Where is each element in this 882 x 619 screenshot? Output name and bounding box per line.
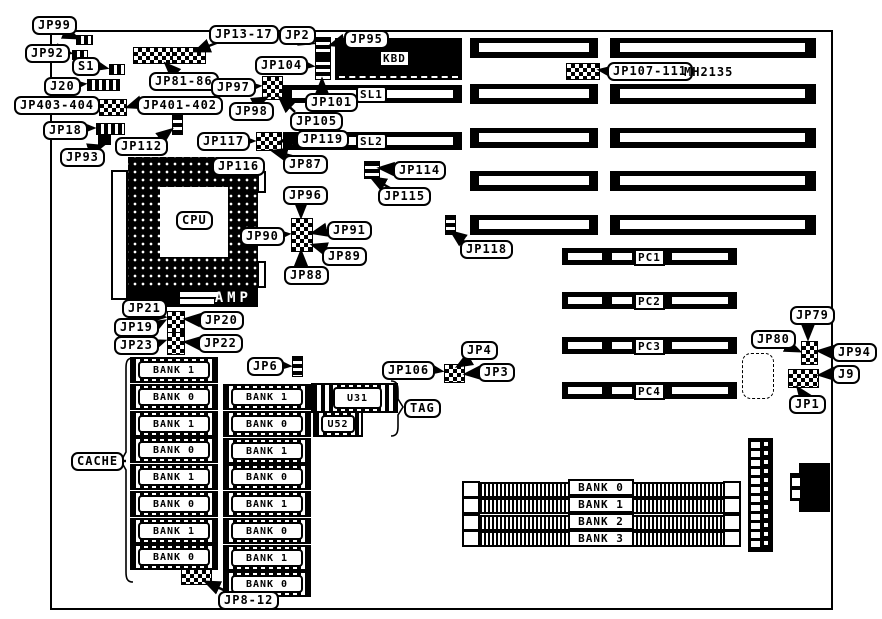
- jp13-17-label: JP13-17: [209, 25, 279, 44]
- jp88-label: JP88: [284, 266, 329, 285]
- jp119-label: JP119: [296, 130, 349, 149]
- jp6-label: JP6: [247, 357, 284, 376]
- cache-label: CACHE: [71, 452, 124, 471]
- kbd-label: KBD: [381, 52, 408, 65]
- pc3-label: PC3: [634, 338, 665, 355]
- j9-label: J9: [832, 365, 860, 384]
- jp94-label: JP94: [832, 343, 877, 362]
- j20-label: J20: [44, 77, 81, 96]
- jp87-label: JP87: [283, 155, 328, 174]
- sl2-label: SL2: [356, 133, 387, 150]
- jp97-label: JP97: [211, 78, 256, 97]
- jp107-111-label: JP107-111: [607, 62, 693, 81]
- simm-bank-label: BANK 3: [568, 530, 634, 547]
- jp105-label: JP105: [290, 112, 343, 131]
- jp118-label: JP118: [460, 240, 513, 259]
- jp3-label: JP3: [478, 363, 515, 382]
- jp116-label: JP116: [212, 157, 265, 176]
- jp79-label: JP79: [790, 306, 835, 325]
- jp91-label: JP91: [327, 221, 372, 240]
- jp90-label: JP90: [240, 227, 285, 246]
- simm-bank-label: BANK 2: [568, 513, 634, 530]
- jp99-label: JP99: [32, 16, 77, 35]
- tag-label: TAG: [404, 399, 441, 418]
- pc2-label: PC2: [634, 293, 665, 310]
- jp114-label: JP114: [393, 161, 446, 180]
- pc1-label: PC1: [634, 249, 665, 266]
- jp101-label: JP101: [305, 93, 358, 112]
- jp98-label: JP98: [229, 102, 274, 121]
- mh2135-text: MH2135: [684, 65, 733, 79]
- jp401-402-label: JP401-402: [137, 96, 223, 115]
- jp22-label: JP22: [198, 334, 243, 353]
- jp23-label: JP23: [114, 336, 159, 355]
- jp81-86-label: JP81-86: [149, 72, 219, 91]
- jp403-404-label: JP403-404: [14, 96, 100, 115]
- jp96-label: JP96: [283, 186, 328, 205]
- jp18-label: JP18: [43, 121, 88, 140]
- jp1-label: JP1: [789, 395, 826, 414]
- s1-label: S1: [72, 57, 100, 76]
- jp93-label: JP93: [60, 148, 105, 167]
- jp21-label: JP21: [122, 299, 167, 318]
- sl1-label: SL1: [356, 86, 387, 103]
- jp80-label: JP80: [751, 330, 796, 349]
- jp117-label: JP117: [197, 132, 250, 151]
- motherboard-jumper-diagram: SL1 SL2 KBD AMP CPU BANK: [0, 0, 882, 619]
- tag-brace: [391, 381, 403, 436]
- jp19-label: JP19: [114, 318, 159, 337]
- jp8-12-label: JP8-12: [218, 591, 279, 610]
- jp112-label: JP112: [115, 137, 168, 156]
- jp104-label: JP104: [255, 56, 308, 75]
- simm-bank-label: BANK 0: [568, 479, 634, 496]
- jp92-label: JP92: [25, 44, 70, 63]
- jp106-label: JP106: [382, 361, 435, 380]
- jp20-label: JP20: [199, 311, 244, 330]
- jp89-label: JP89: [322, 247, 367, 266]
- cpu-label: CPU: [176, 211, 213, 230]
- jp95-label: JP95: [344, 30, 389, 49]
- jp4-label: JP4: [461, 341, 498, 360]
- cache-brace: [121, 358, 133, 582]
- jp2-label: JP2: [279, 26, 316, 45]
- simm-bank-label: BANK 1: [568, 496, 634, 513]
- pc4-label: PC4: [634, 383, 665, 400]
- jp115-label: JP115: [378, 187, 431, 206]
